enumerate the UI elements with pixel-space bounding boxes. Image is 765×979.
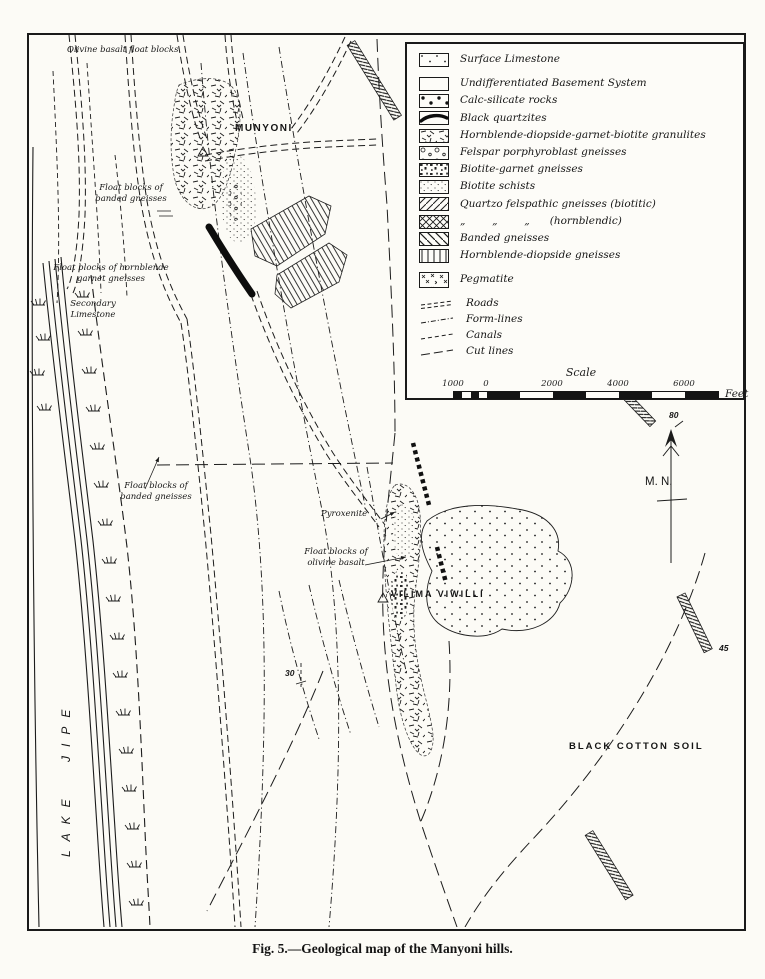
biotite-schist-swatch xyxy=(419,180,449,194)
legend-item-label: Roads xyxy=(466,298,499,310)
legend-line-symbols: Roads Form-lines Canals Cut lines xyxy=(419,297,733,359)
legend-item-label: Calc-silicate rocks xyxy=(460,95,557,107)
legend-item-label: Pegmatite xyxy=(460,274,514,286)
scale-bar-graphic: 1000 0 2000 4000 6000 Feet xyxy=(453,379,753,405)
legend-item-surface-limestone: Surface Limestone xyxy=(419,53,733,67)
label-lake-jipe: LAKE JIPE xyxy=(59,701,74,857)
label-float-hornblende: Float blocks of hornblende garnet gneiss… xyxy=(43,263,179,284)
label-dip-45: 45 xyxy=(719,643,728,654)
legend-item-label: Banded gneisses xyxy=(460,233,549,245)
basement-swatch xyxy=(419,77,449,91)
surface-limestone-swatch xyxy=(419,53,449,67)
legend-item-cut-lines: Cut lines xyxy=(419,345,733,359)
label-float-banded-2: Float blocks of banded gneisses xyxy=(113,481,199,502)
label-dip-30: 30 xyxy=(285,668,294,679)
scale-bar: Scale 1000 0 2000 4000 6000 Feet xyxy=(419,366,733,410)
dip-30-symbol xyxy=(296,663,306,687)
label-olivine-basalt-float: Olivine basalt float blocks xyxy=(67,45,178,56)
legend-item-form-lines: Form-lines xyxy=(419,313,733,327)
legend-item-label: Biotite-garnet gneisses xyxy=(460,164,583,176)
biotite-garnet-swatch xyxy=(419,163,449,177)
legend-item-label: Surface Limestone xyxy=(460,54,560,66)
legend-item-banded-gneisses: Banded gneisses xyxy=(419,232,733,246)
pegmatite-swatch xyxy=(419,272,449,288)
legend-item-label: Hornblende-diopside-garnet-biotite granu… xyxy=(460,130,706,142)
scale-unit: Feet xyxy=(725,388,748,400)
legend-item-label: Cut lines xyxy=(466,346,513,358)
banded-gneiss-swatch xyxy=(419,232,449,246)
surface-limestone-area xyxy=(421,505,572,636)
porphyroblast-swatch xyxy=(419,146,449,160)
legend-item-biotite-schists: Biotite schists xyxy=(419,180,733,194)
label-float-olivine: Float blocks of olivine basalt xyxy=(295,547,377,568)
legend-item-label: Form-lines xyxy=(466,314,523,326)
scale-bar-segments xyxy=(453,391,719,399)
legend-item-label: Quartzo felspathic gneisses (biotitic) xyxy=(460,199,656,211)
legend-item-biotite-garnet: Biotite-garnet gneisses xyxy=(419,163,733,177)
scale-tick: 4000 xyxy=(607,379,629,389)
legend-item-granulites: Hornblende-diopside-garnet-biotite granu… xyxy=(419,129,733,143)
scale-title: Scale xyxy=(449,366,713,379)
legend-item-basement: Undifferentiated Basement System xyxy=(419,77,733,91)
legend-item-qf-biotitic: Quartzo felspathic gneisses (biotitic) xyxy=(419,197,733,211)
legend-item-label: Biotite schists xyxy=(460,181,535,193)
legend-item-calc-silicate: Calc-silicate rocks xyxy=(419,94,733,108)
qf-hornblendic-swatch xyxy=(419,215,449,229)
hd-gneiss-swatch xyxy=(419,249,449,263)
calc-silicate-swatch xyxy=(419,94,449,108)
label-float-banded-1: Float blocks of banded gneisses xyxy=(85,183,177,204)
legend-item-label: Black quartzites xyxy=(460,113,547,125)
label-magnetic-north: M. N. xyxy=(645,475,672,489)
label-black-cotton-soil: BLACK COTTON SOIL xyxy=(569,741,704,753)
canal-line-symbol xyxy=(419,330,455,342)
legend-item-label: Canals xyxy=(466,330,502,342)
munyoni-hill xyxy=(171,79,347,308)
figure-caption: Fig. 5.—Geological map of the Manyoni hi… xyxy=(0,941,765,957)
label-secondary-limestone: Secondary Limestone xyxy=(57,299,129,320)
roads-line-symbol xyxy=(419,298,455,310)
scale-tick: 0 xyxy=(483,379,488,389)
legend-item-label: Felspar porphyroblast gneisses xyxy=(460,147,627,159)
legend-item-label: Hornblende-diopside gneisses xyxy=(460,250,620,262)
legend-item-canals: Canals xyxy=(419,329,733,343)
legend-item-black-quartzites: Black quartzites xyxy=(419,111,733,125)
qf-biotitic-swatch xyxy=(419,197,449,211)
label-pyroxenite: Pyroxenite xyxy=(321,509,367,520)
granulite-swatch xyxy=(419,129,449,143)
legend-item-hd-gneisses: Hornblende-diopside gneisses xyxy=(419,249,733,263)
scale-tick: 6000 xyxy=(673,379,695,389)
legend-item-porphyroblast: Felspar porphyroblast gneisses xyxy=(419,146,733,160)
legend-item-label: Undifferentiated Basement System xyxy=(460,78,647,90)
legend-item-qf-hornblendic: „ „ „ (hornblendic) xyxy=(419,215,733,229)
legend: Surface Limestone Undifferentiated Basem… xyxy=(405,42,745,400)
scale-tick: 1000 xyxy=(442,379,464,389)
black-quartzite-swatch xyxy=(419,111,449,125)
label-dip-80: 80 xyxy=(669,410,678,421)
north-arrow xyxy=(657,421,687,563)
legend-item-roads: Roads xyxy=(419,297,733,311)
form-line-symbol xyxy=(419,314,455,326)
legend-item-label: „ „ „ (hornblendic) xyxy=(460,216,622,228)
scale-tick: 2000 xyxy=(541,379,563,389)
cut-line-symbol xyxy=(419,346,455,358)
legend-item-pegmatite: Pegmatite xyxy=(419,272,733,288)
scanned-figure-page: Olivine basalt float blocks MUNYONI Floa… xyxy=(0,0,765,979)
label-munyoni: MUNYONI xyxy=(235,123,293,136)
label-vilima-viwili: VILIMA VIWILLI xyxy=(391,589,485,600)
